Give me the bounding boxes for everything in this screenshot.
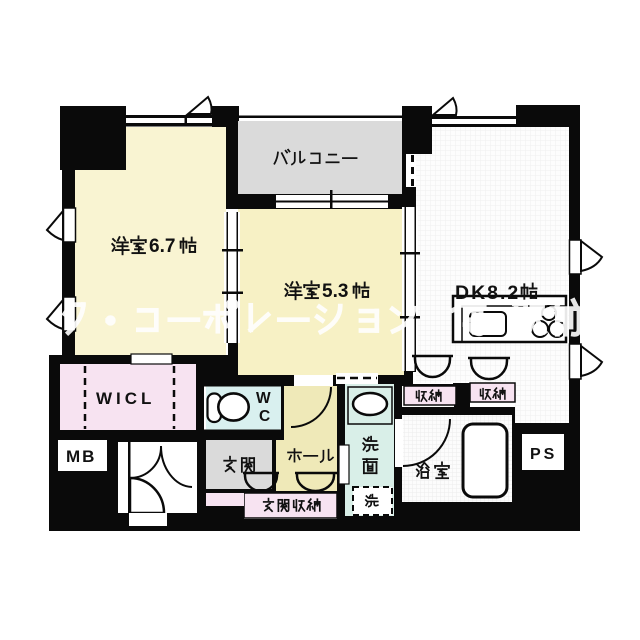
svg-text:DK8.2: DK8.2 bbox=[455, 282, 520, 304]
svg-text:W: W bbox=[256, 390, 271, 407]
svg-text:MB: MB bbox=[66, 447, 96, 466]
svg-text:C: C bbox=[259, 408, 270, 425]
svg-text:PS: PS bbox=[530, 446, 557, 463]
svg-text:WICL: WICL bbox=[96, 389, 155, 408]
svg-text:6.7: 6.7 bbox=[149, 236, 175, 257]
svg-text:5.3: 5.3 bbox=[322, 281, 348, 302]
